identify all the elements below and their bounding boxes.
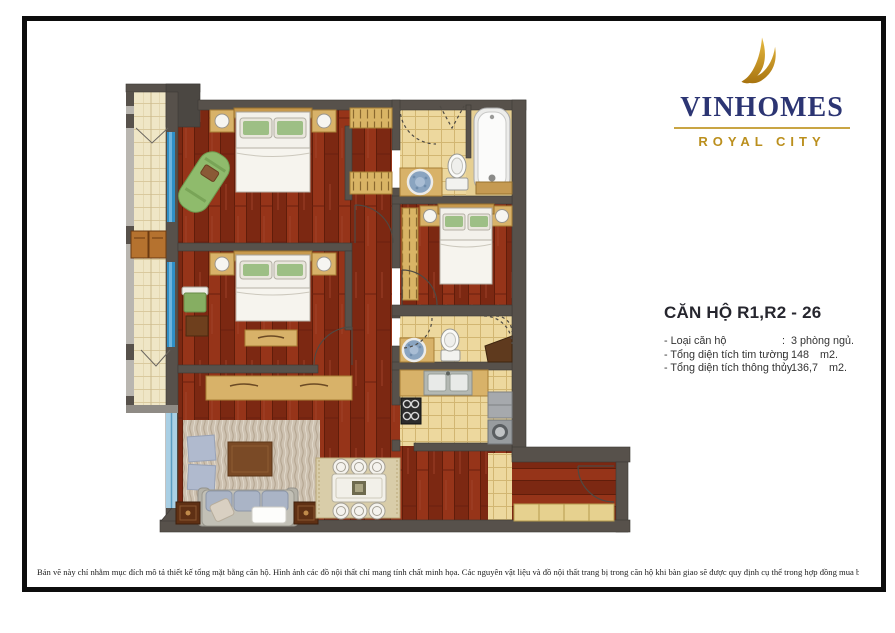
ac-unit	[131, 231, 148, 258]
hall-right-wall-a	[392, 100, 400, 150]
hall-right-wall-d	[392, 346, 400, 405]
lamp	[215, 257, 229, 271]
lamp	[317, 257, 331, 271]
toilet	[441, 329, 460, 361]
bath1-bottom-wall	[392, 196, 512, 204]
fridge	[488, 392, 512, 418]
entry-pad-tile	[488, 453, 512, 522]
tv-sideboard	[206, 376, 352, 400]
armchair	[182, 287, 208, 312]
spec-value: 136,7	[791, 362, 818, 376]
ottoman	[187, 435, 216, 462]
round-basin	[408, 170, 432, 194]
vinhomes-logo: VINHOMES ROYAL CITY	[662, 30, 862, 155]
spec-label: - Loại căn hộ	[664, 335, 782, 349]
brand-subtitle: ROYAL CITY	[662, 134, 862, 149]
side-table	[186, 316, 208, 336]
bathtub	[474, 108, 510, 192]
wardrobe	[350, 172, 392, 194]
brand-name: VINHOMES	[662, 93, 862, 123]
side-table	[176, 502, 200, 524]
tub-divider-wall	[466, 105, 471, 158]
bed2-living-wall	[178, 365, 318, 373]
bed3-bottom-wall	[392, 305, 512, 316]
sofa	[198, 488, 298, 526]
right-wall	[512, 100, 526, 457]
kitchen-sink	[424, 371, 472, 395]
spec-label: - Tổng diện tích thông thủy	[664, 362, 782, 376]
lamp	[424, 210, 437, 223]
corridor-top-wall	[512, 447, 630, 462]
wardrobe	[402, 208, 418, 300]
balcony-units	[131, 231, 166, 258]
washing-machine	[488, 420, 512, 444]
unit-info-panel: CĂN HỘ R1,R2 - 26 - Loại căn hộ : 3 phòn…	[664, 303, 879, 376]
ac-unit	[149, 231, 166, 258]
vinhomes-bird-icon	[727, 30, 797, 86]
lamp	[496, 210, 509, 223]
bed1-bed2-divider	[178, 243, 352, 251]
bath2-bottom-wall	[392, 362, 512, 370]
hall-right-wall-e	[392, 440, 400, 451]
toilet	[446, 154, 468, 190]
double-bed	[236, 112, 310, 192]
spec-row: - Tổng diện tích tim tường : 148 m2.	[664, 349, 879, 363]
tub-shelf	[476, 182, 512, 194]
disclaimer-text: Bản vẽ này chỉ nhằm mục đích mô tả thiết…	[37, 567, 859, 577]
wardrobe	[350, 108, 392, 128]
unit-title: CĂN HỘ R1,R2 - 26	[664, 303, 879, 323]
double-bed	[440, 208, 492, 284]
spec-value: 148	[791, 349, 809, 363]
round-basin	[403, 339, 425, 361]
coffee-table	[228, 442, 272, 476]
lamp	[215, 114, 229, 128]
floorplan-sheet: VINHOMES ROYAL CITY CĂN HỘ R1,R2 - 26 - …	[0, 0, 895, 633]
lamp	[317, 114, 331, 128]
hall-left-wall-b	[345, 251, 352, 330]
bed-bench	[245, 330, 297, 346]
logo-divider	[674, 127, 850, 129]
side-table	[294, 502, 318, 524]
double-bed	[236, 255, 310, 321]
ottoman	[187, 464, 215, 490]
spec-row: - Tổng diện tích thông thủy : 136,7 m2.	[664, 362, 879, 376]
spec-row: - Loại căn hộ : 3 phòng ngủ.	[664, 335, 879, 349]
entry-hall	[514, 504, 614, 521]
dining-table	[332, 474, 386, 502]
spec-label: - Tổng diện tích tim tường	[664, 349, 782, 363]
dining-area	[316, 458, 400, 519]
stove	[401, 398, 421, 424]
spec-value: 3 phòng ngủ.	[791, 335, 854, 349]
